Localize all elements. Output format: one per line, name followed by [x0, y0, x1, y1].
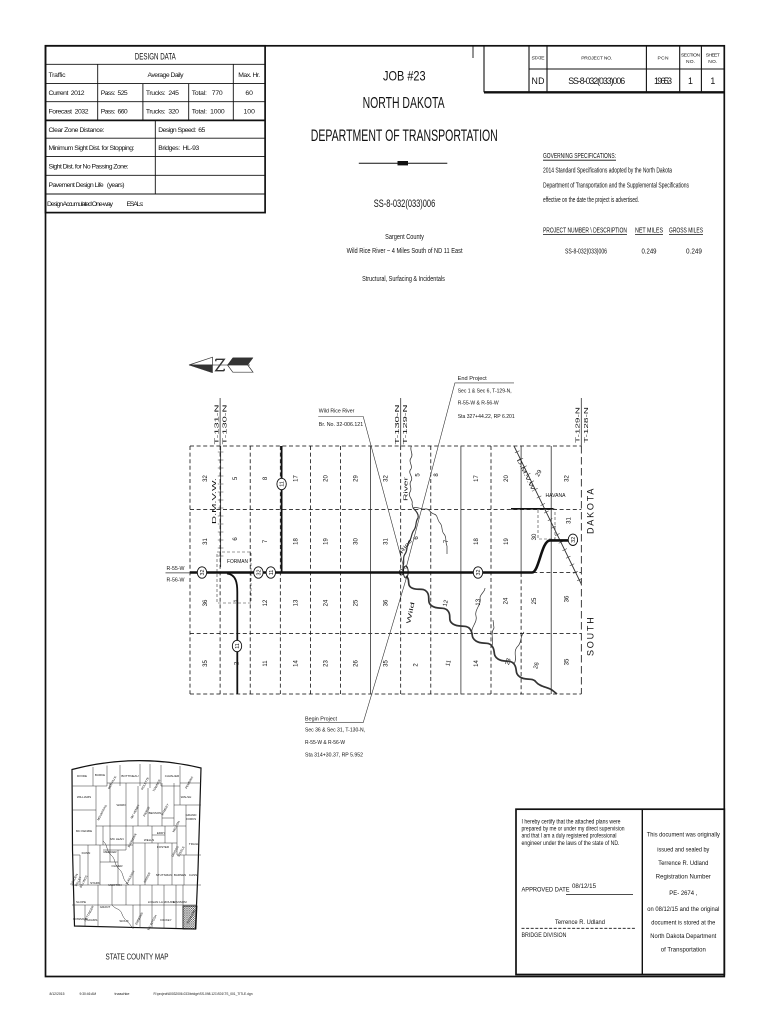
svg-text:OLIVER: OLIVER — [111, 864, 123, 868]
svg-text:Traffic: Traffic — [49, 72, 67, 79]
svg-text:BARNES: BARNES — [174, 873, 186, 877]
svg-text:32: 32 — [203, 475, 209, 482]
svg-text:PROJECT NUMBER \ DESCRIPTION: PROJECT NUMBER \ DESCRIPTION — [543, 227, 627, 234]
svg-text:North Dakota Department: North Dakota Department — [650, 933, 716, 940]
svg-text:CASS: CASS — [189, 873, 197, 877]
svg-text:Design Accumulated One-way: Design Accumulated One-way — [47, 201, 114, 208]
svg-text:Registration Number: Registration Number — [656, 874, 711, 881]
svg-text:BRIDGE DIVISION: BRIDGE DIVISION — [522, 932, 567, 939]
svg-text:STUTSMAN: STUTSMAN — [156, 873, 173, 877]
svg-text:T-129-N: T-129-N — [576, 407, 582, 443]
svg-text:14: 14 — [293, 660, 299, 667]
svg-text:FORMAN: FORMAN — [227, 559, 248, 565]
svg-text:35: 35 — [384, 660, 390, 667]
svg-text:31: 31 — [566, 517, 572, 524]
svg-text:23: 23 — [324, 660, 330, 667]
svg-text:Sta 314+30.37, RP 5.952: Sta 314+30.37, RP 5.952 — [305, 753, 363, 759]
svg-text:WALSH: WALSH — [181, 795, 192, 799]
svg-text:DICKEY: DICKEY — [160, 918, 171, 922]
svg-text:20: 20 — [504, 475, 510, 482]
svg-text:35: 35 — [203, 660, 209, 667]
svg-text:SS-8-032(033)006: SS-8-032(033)006 — [565, 249, 607, 256]
svg-text:19: 19 — [504, 538, 510, 545]
svg-text:STATE: STATE — [532, 56, 546, 62]
svg-text:24: 24 — [324, 599, 330, 606]
svg-text:DAKOTA: DAKOTA — [586, 487, 596, 534]
svg-text:Clear Zone Distance:: Clear Zone Distance: — [49, 127, 105, 134]
svg-text:PCN: PCN — [658, 56, 669, 62]
svg-text:DIVIDE: DIVIDE — [77, 774, 87, 778]
svg-text:JOB #23: JOB #23 — [383, 68, 426, 84]
svg-text:GOVERNING SPECIFICATIONS:: GOVERNING SPECIFICATIONS: — [543, 153, 616, 160]
svg-text:FOSTER: FOSTER — [157, 845, 170, 849]
svg-text:STARK: STARK — [90, 881, 100, 885]
svg-text:DUNN: DUNN — [82, 851, 91, 855]
svg-text:Max. Hr.: Max. Hr. — [238, 72, 260, 79]
svg-text:HAVANA: HAVANA — [546, 493, 566, 499]
svg-text:R-55-W & R-56-W: R-55-W & R-56-W — [458, 400, 500, 406]
svg-text:Pass: 660: Pass: 660 — [101, 109, 128, 116]
svg-text:1: 1 — [710, 76, 715, 86]
svg-text:Terrence R. Udland: Terrence R. Udland — [658, 860, 708, 867]
svg-text:End Project: End Project — [458, 376, 487, 382]
svg-text:Trucks: 320: Trucks: 320 — [146, 109, 179, 116]
svg-text:11: 11 — [269, 570, 275, 576]
svg-text:T-128-N: T-128-N — [584, 407, 590, 443]
svg-text:of Transportation: of Transportation — [661, 947, 706, 954]
svg-text:Sargent County: Sargent County — [385, 232, 424, 241]
svg-text:Sight Dist. for No Passing Zon: Sight Dist. for No Passing Zone: — [49, 164, 129, 171]
svg-text:32: 32 — [384, 475, 390, 482]
svg-text:Forecast 2032: Forecast 2032 — [49, 109, 89, 116]
svg-text:19653: 19653 — [654, 76, 672, 86]
svg-text:0.249: 0.249 — [642, 249, 657, 256]
svg-text:32: 32 — [476, 570, 482, 576]
svg-text:T-130-N: T-130-N — [395, 404, 401, 444]
svg-text:WELLS: WELLS — [144, 838, 154, 842]
svg-text:document is stored at the: document is stored at the — [651, 920, 715, 927]
svg-text:11: 11 — [235, 643, 241, 649]
svg-text:This document was originally: This document was originally — [647, 832, 721, 839]
svg-text:36: 36 — [384, 599, 390, 606]
svg-text:100: 100 — [244, 109, 256, 116]
svg-text:Sec 36 & Sec 31, T-130-N,: Sec 36 & Sec 31, T-130-N, — [305, 727, 365, 733]
svg-text:MORTON: MORTON — [108, 883, 121, 887]
svg-text:Pass: 525: Pass: 525 — [101, 90, 128, 97]
svg-text:ND: ND — [532, 76, 545, 86]
svg-text:SECTION: SECTION — [681, 53, 700, 59]
svg-text:Br. No. 32-006.121: Br. No. 32-006.121 — [319, 422, 363, 428]
svg-text:engineer under the laws of the: engineer under the laws of the state of … — [522, 840, 620, 847]
svg-text:25: 25 — [354, 599, 360, 606]
svg-text:Average Daily: Average Daily — [148, 72, 185, 79]
svg-text:BURKE: BURKE — [95, 773, 105, 777]
svg-text:31: 31 — [203, 538, 209, 545]
svg-text:DEPARTMENT OF TRANSPORTATION: DEPARTMENT OF TRANSPORTATION — [311, 126, 498, 145]
svg-text:TRAILL: TRAILL — [189, 842, 200, 846]
svg-text:19: 19 — [324, 538, 330, 545]
svg-text:BOTTINEAU: BOTTINEAU — [121, 774, 138, 778]
svg-text:MC LEAN: MC LEAN — [110, 837, 123, 841]
svg-text:08/12/15: 08/12/15 — [572, 883, 596, 890]
svg-text:Total: 1000: Total: 1000 — [192, 109, 225, 116]
svg-text:BOWMAN: BOWMAN — [73, 917, 87, 921]
svg-text:ADAMS: ADAMS — [87, 918, 98, 922]
svg-text:WILLIAMS: WILLIAMS — [77, 795, 91, 799]
svg-text:60: 60 — [245, 90, 253, 97]
svg-text:R-55-W: R-55-W — [167, 566, 186, 572]
svg-text:tnaschke: tnaschke — [115, 992, 130, 996]
svg-text:Structural, Surfacing & Incide: Structural, Surfacing & Incidentals — [362, 274, 445, 283]
svg-text:Design Speed: 65: Design Speed: 65 — [158, 127, 205, 134]
svg-text:effective on the date the proj: effective on the date the project is adv… — [543, 197, 639, 204]
svg-text:R-56-W: R-56-W — [167, 577, 186, 583]
svg-text:Trucks: 245: Trucks: 245 — [146, 90, 179, 97]
svg-text:Bridges: HL-93: Bridges: HL-93 — [158, 145, 199, 152]
svg-text:36: 36 — [203, 599, 209, 606]
svg-text:and that I am a duly registere: and that I am a duly registered professi… — [522, 833, 617, 840]
svg-text:32: 32 — [256, 570, 262, 576]
svg-text:12: 12 — [263, 599, 269, 606]
svg-text:MERCER: MERCER — [103, 850, 117, 854]
svg-text:2014 Standard Specifications a: 2014 Standard Specifications adopted by … — [543, 168, 672, 175]
svg-text:EDDY: EDDY — [157, 831, 165, 835]
svg-text:17: 17 — [293, 475, 299, 482]
svg-text:26: 26 — [354, 660, 360, 667]
svg-text:8/12/2015: 8/12/2015 — [50, 992, 65, 996]
svg-text:PROJECT NO.: PROJECT NO. — [581, 56, 612, 62]
svg-text:36: 36 — [564, 595, 570, 602]
svg-text:35: 35 — [564, 658, 570, 665]
svg-text:SS-8-032(033)006: SS-8-032(033)006 — [568, 76, 625, 86]
svg-text:Sta 327+44.22, RP 6.201: Sta 327+44.22, RP 6.201 — [458, 414, 515, 420]
svg-text:LOGAN: LOGAN — [148, 900, 159, 904]
svg-text:32: 32 — [571, 537, 577, 543]
svg-text:17: 17 — [474, 475, 480, 482]
svg-text:D.M.V.W.: D.M.V.W. — [212, 478, 218, 524]
svg-text:ESALs:: ESALs: — [127, 201, 144, 208]
svg-text:20: 20 — [324, 475, 330, 482]
svg-text:24: 24 — [503, 597, 509, 604]
svg-text:11: 11 — [263, 660, 269, 667]
svg-text:prepared by me or under my dir: prepared by me or under my direct superv… — [522, 826, 625, 833]
svg-text:T-130-N: T-130-N — [223, 404, 229, 444]
svg-text:NET MILES: NET MILES — [635, 227, 663, 234]
svg-text:32: 32 — [200, 570, 206, 576]
svg-text:Pavement Design Life (years): Pavement Design Life (years) — [49, 182, 125, 189]
svg-text:13: 13 — [293, 599, 299, 606]
svg-text:Minimum Sight Dist. for Stoppi: Minimum Sight Dist. for Stopping: — [49, 145, 135, 152]
svg-text:SLOPE: SLOPE — [76, 900, 86, 904]
svg-text:0.249: 0.249 — [686, 249, 702, 256]
svg-text:Department of Transportation a: Department of Transportation and the Sup… — [543, 183, 689, 190]
svg-text:on 08/12/15 and the original: on 08/12/15 and the original — [647, 906, 719, 913]
svg-text:T-131-N: T-131-N — [214, 404, 220, 444]
svg-text:GRANT: GRANT — [100, 905, 111, 909]
svg-text:NORTH DAKOTA: NORTH DAKOTA — [363, 95, 445, 112]
svg-text:32: 32 — [564, 475, 570, 482]
svg-text:11: 11 — [280, 481, 286, 487]
svg-text:SS-8-032(033)006: SS-8-032(033)006 — [374, 198, 436, 210]
svg-text:WARD: WARD — [116, 803, 126, 807]
svg-text:1: 1 — [688, 76, 693, 86]
svg-text:NO.: NO. — [708, 59, 717, 65]
svg-text:18: 18 — [474, 538, 480, 545]
svg-text:River: River — [404, 477, 410, 501]
svg-text:25: 25 — [532, 597, 538, 604]
svg-text:R:\project\60032006.033\bridge: R:\project\60032006.033\bridge\SS-098.12… — [154, 992, 253, 996]
svg-text:Sec 1 & Sec 6, T-129-N,: Sec 1 & Sec 6, T-129-N, — [458, 389, 512, 395]
svg-text:SHEET: SHEET — [706, 53, 720, 59]
svg-text:RANSOM: RANSOM — [173, 900, 187, 904]
svg-text:CAVALIER: CAVALIER — [165, 774, 180, 778]
svg-text:STATE COUNTY MAP: STATE COUNTY MAP — [106, 953, 169, 962]
svg-text:I hereby certify that the atta: I hereby certify that the attached plans… — [522, 818, 621, 825]
svg-text:Wild Rice River: Wild Rice River — [319, 409, 355, 415]
svg-text:PE- 2674 ,: PE- 2674 , — [669, 890, 697, 897]
svg-text:18: 18 — [293, 538, 299, 545]
svg-text:SIOUX: SIOUX — [119, 919, 128, 923]
svg-text:R-55-W & R-56-W: R-55-W & R-56-W — [305, 740, 346, 746]
svg-text:9:30:46 AM: 9:30:46 AM — [80, 992, 97, 996]
svg-text:29: 29 — [354, 475, 360, 482]
svg-text:APPROVED DATE: APPROVED DATE — [522, 887, 570, 894]
svg-text:30: 30 — [354, 538, 360, 545]
svg-text:DESIGN DATA: DESIGN DATA — [135, 52, 176, 62]
svg-text:T-129-N: T-129-N — [403, 404, 409, 444]
svg-text:14: 14 — [474, 660, 480, 667]
svg-text:Wild Rice River ~ 4 Miles Sout: Wild Rice River ~ 4 Miles South of ND 11… — [347, 246, 464, 255]
svg-text:GROSS MILES: GROSS MILES — [669, 227, 703, 234]
svg-text:MC KENZIE: MC KENZIE — [76, 829, 92, 833]
svg-text:Current 2012: Current 2012 — [49, 90, 85, 97]
svg-text:Total: 770: Total: 770 — [192, 90, 223, 97]
svg-text:issued and sealed by: issued and sealed by — [657, 847, 710, 854]
svg-text:SOUTH: SOUTH — [586, 616, 596, 657]
svg-text:NO.: NO. — [686, 59, 695, 65]
svg-text:31: 31 — [384, 538, 390, 545]
svg-text:Terrence R. Udland: Terrence R. Udland — [555, 919, 605, 926]
svg-text:Begin Project: Begin Project — [305, 716, 337, 722]
svg-text:FORKS: FORKS — [186, 817, 196, 821]
svg-text:30: 30 — [532, 533, 538, 540]
